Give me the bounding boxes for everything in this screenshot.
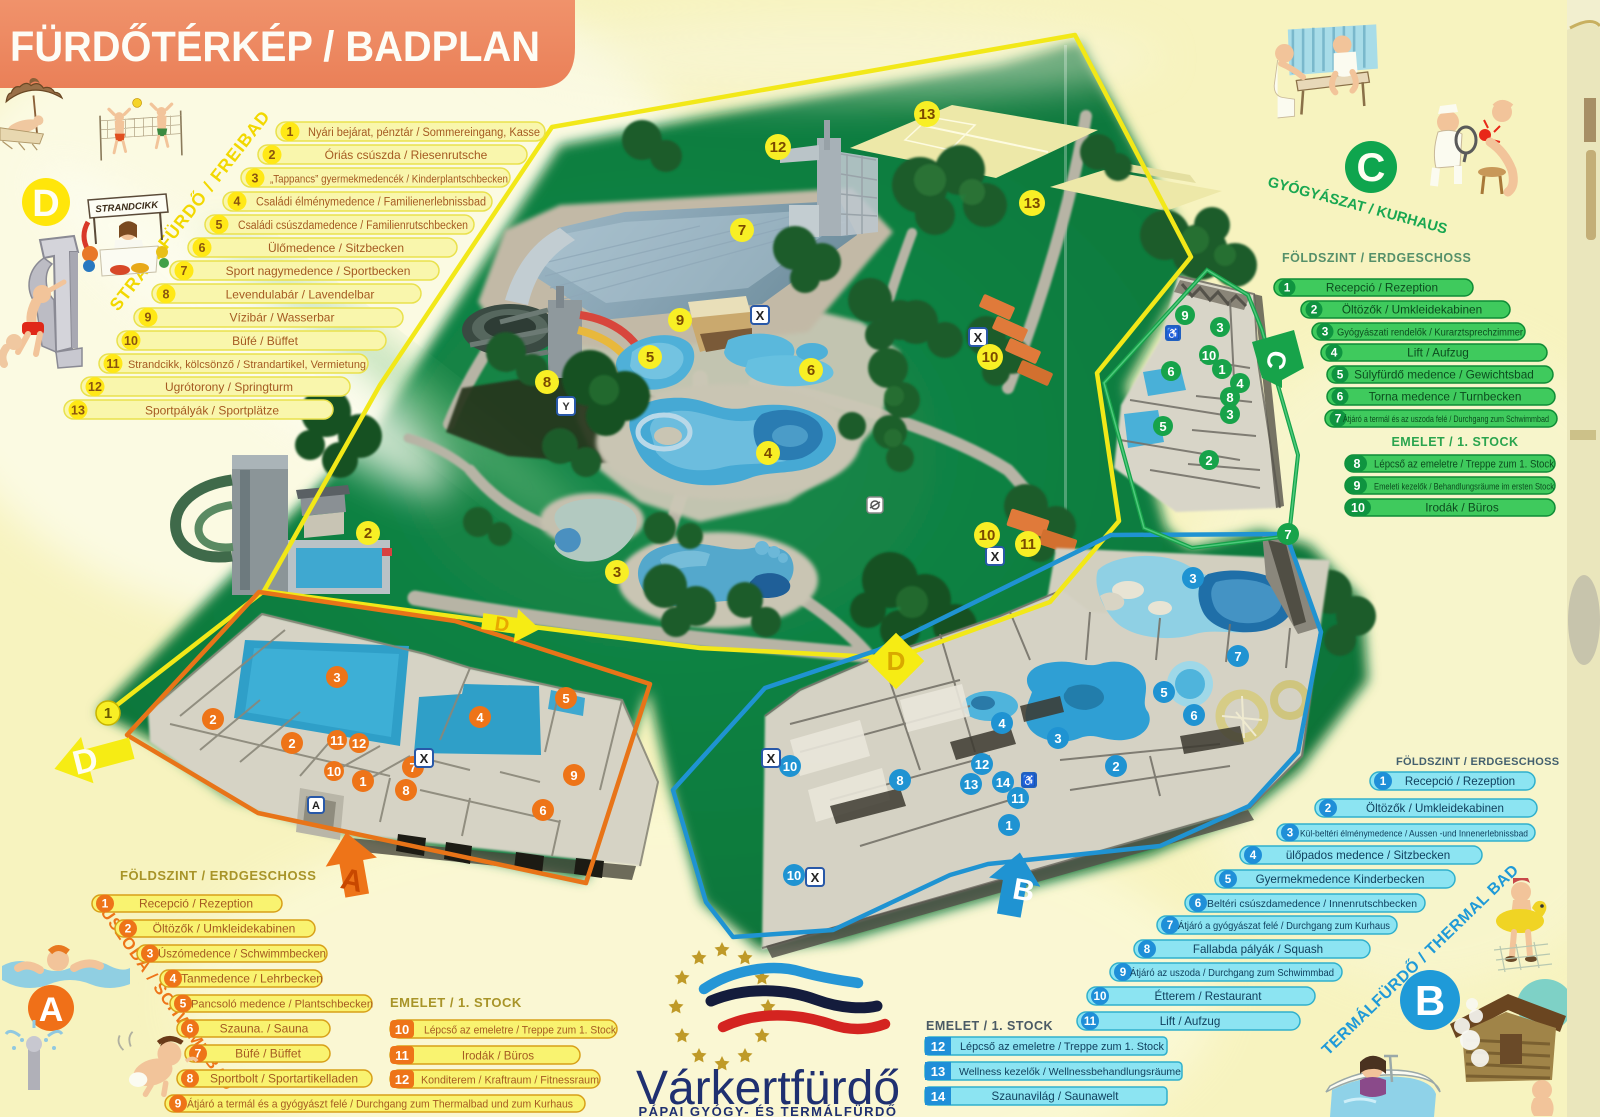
svg-text:14: 14	[931, 1089, 946, 1104]
svg-text:11: 11	[1011, 791, 1025, 806]
svg-text:3: 3	[147, 947, 154, 961]
svg-text:10: 10	[1351, 501, 1365, 515]
svg-text:D: D	[887, 646, 906, 676]
svg-text:5: 5	[562, 691, 569, 706]
svg-text:Ülőmedence / Sitzbecken: Ülőmedence / Sitzbecken	[268, 241, 404, 255]
svg-text:1: 1	[1005, 818, 1012, 833]
svg-text:8: 8	[1144, 943, 1151, 956]
svg-text:10: 10	[327, 764, 341, 779]
svg-text:13: 13	[964, 777, 978, 792]
svg-text:3: 3	[1054, 731, 1061, 746]
svg-text:Öltözők / Umkleidekabinen: Öltözők / Umkleidekabinen	[1366, 802, 1504, 815]
svg-text:11: 11	[330, 733, 344, 748]
svg-text:6: 6	[807, 362, 815, 379]
svg-text:9: 9	[1354, 479, 1361, 493]
svg-text:10: 10	[124, 334, 138, 348]
svg-text:4: 4	[1250, 849, 1257, 862]
svg-text:5: 5	[1159, 419, 1166, 434]
svg-text:Lépcső az emeletre / Treppe zu: Lépcső az emeletre / Treppe zum 1. Stock	[424, 1025, 616, 1037]
svg-text:10: 10	[395, 1022, 409, 1037]
svg-text:Nyári bejárat, pénztár / Somme: Nyári bejárat, pénztár / Sommereingang, …	[308, 127, 540, 139]
svg-text:1: 1	[1380, 775, 1387, 788]
svg-text:3: 3	[1226, 407, 1233, 422]
svg-text:Wellness kezelők / Wellnessbeh: Wellness kezelők / Wellnessbehandlungsrä…	[959, 1066, 1181, 1078]
svg-text:4: 4	[476, 710, 484, 725]
svg-text:11: 11	[1020, 536, 1036, 553]
svg-text:7: 7	[1234, 649, 1241, 664]
svg-text:Recepció / Rezeption: Recepció / Rezeption	[1405, 775, 1515, 788]
svg-text:X: X	[811, 870, 820, 885]
svg-text:7: 7	[1335, 412, 1342, 426]
svg-text:Sportbolt / Sportartikelladen: Sportbolt / Sportartikelladen	[210, 1072, 358, 1086]
svg-text:Étterem / Restaurant: Étterem / Restaurant	[1155, 990, 1263, 1003]
svg-text:8: 8	[543, 374, 551, 391]
svg-text:X: X	[974, 330, 983, 345]
svg-text:3: 3	[613, 564, 621, 581]
svg-text:FÖLDSZINT / ERDGESCHOSS: FÖLDSZINT / ERDGESCHOSS	[120, 868, 316, 883]
svg-text:5: 5	[180, 997, 187, 1011]
svg-text:2: 2	[1311, 303, 1318, 317]
svg-text:3: 3	[333, 670, 340, 685]
svg-text:X: X	[756, 308, 765, 323]
svg-text:4: 4	[234, 195, 241, 209]
svg-text:Fallabda pályák / Squash: Fallabda pályák / Squash	[1193, 943, 1323, 956]
svg-text:1: 1	[104, 705, 112, 722]
svg-text:6: 6	[1337, 390, 1344, 404]
svg-text:C: C	[1357, 146, 1386, 190]
svg-text:2: 2	[288, 736, 295, 751]
svg-text:10: 10	[787, 868, 801, 883]
svg-text:PÁPAI GYÓGY- ÉS TERMÁLFÜRDŐ: PÁPAI GYÓGY- ÉS TERMÁLFÜRDŐ	[638, 1104, 897, 1117]
svg-text:1: 1	[102, 897, 109, 911]
svg-text:8: 8	[1226, 390, 1233, 405]
svg-text:Családi csúszdamedence / Famil: Családi csúszdamedence / Familienrutschb…	[238, 220, 468, 232]
svg-text:9: 9	[175, 1097, 182, 1111]
svg-text:Irodák / Büros: Irodák / Büros	[462, 1050, 534, 1063]
svg-text:♿: ♿	[1166, 327, 1180, 340]
svg-text:2: 2	[364, 525, 372, 542]
svg-text:5: 5	[1337, 368, 1344, 382]
svg-text:12: 12	[395, 1072, 409, 1087]
svg-text:Átjáró a gyógyászat felé / Dur: Átjáró a gyógyászat felé / Durchgang zum…	[1178, 919, 1390, 932]
svg-text:Torna medence / Turnbecken: Torna medence / Turnbecken	[1369, 390, 1522, 404]
svg-text:2: 2	[125, 922, 132, 936]
svg-text:Recepció / Rezeption: Recepció / Rezeption	[139, 897, 253, 911]
svg-text:1: 1	[359, 774, 366, 789]
svg-text:Átjáró a termál és az uszoda f: Átjáró a termál és az uszoda felé / Durc…	[1343, 414, 1549, 424]
svg-text:8: 8	[896, 773, 903, 788]
svg-text:EMELET / 1. STOCK: EMELET / 1. STOCK	[390, 995, 522, 1010]
svg-text:8: 8	[1354, 457, 1361, 471]
svg-text:Súlyfürdő medence / Gewichtsba: Súlyfürdő medence / Gewichtsbad	[1354, 368, 1534, 382]
svg-text:12: 12	[770, 139, 787, 156]
svg-text:3: 3	[1189, 571, 1196, 586]
svg-text:Gyógyászati rendelők / Kurarzt: Gyógyászati rendelők / Kurarztsprechzimm…	[1337, 328, 1524, 339]
svg-text:EMELET / 1. STOCK: EMELET / 1. STOCK	[1391, 435, 1518, 449]
svg-text:11: 11	[106, 357, 119, 371]
svg-text:Recepció / Rezeption: Recepció / Rezeption	[1326, 281, 1438, 295]
svg-text:13: 13	[919, 106, 936, 123]
svg-text:Sportpályák / Sportplätze: Sportpályák / Sportplätze	[145, 403, 279, 417]
svg-text:4: 4	[170, 972, 177, 986]
svg-text:Szaunavilág / Saunawelt: Szaunavilág / Saunawelt	[992, 1090, 1120, 1103]
svg-text:Átjáró a termál és a gyógyászt: Átjáró a termál és a gyógyászt felé / Du…	[187, 1098, 573, 1111]
svg-text:9: 9	[145, 311, 152, 325]
svg-text:Lift / Aufzug: Lift / Aufzug	[1407, 346, 1469, 360]
svg-text:Büfé / Büffet: Büfé / Büffet	[232, 334, 298, 348]
svg-text:14: 14	[996, 775, 1011, 790]
svg-text:Y: Y	[562, 401, 570, 413]
svg-text:7: 7	[1167, 919, 1173, 932]
svg-text:Kül-beltéri élménymedence / Au: Kül-beltéri élménymedence / Aussen -und …	[1300, 829, 1528, 839]
svg-text:X: X	[420, 751, 429, 766]
svg-text:Tanmedence / Lehrbecken: Tanmedence / Lehrbecken	[181, 973, 323, 986]
svg-text:FÖLDSZINT / ERDGESCHOSS: FÖLDSZINT / ERDGESCHOSS	[1282, 250, 1471, 265]
svg-text:B: B	[1415, 977, 1445, 1024]
svg-text:9: 9	[1120, 966, 1127, 979]
svg-text:D: D	[32, 183, 59, 225]
svg-text:1: 1	[287, 125, 294, 139]
svg-text:9: 9	[1181, 308, 1188, 323]
svg-text:„Tappancs” gyermekmedencék / K: „Tappancs” gyermekmedencék / Kinderplant…	[270, 173, 508, 185]
svg-text:Beltéri csúszdamedence / Innen: Beltéri csúszdamedence / Innenrutschbeck…	[1207, 898, 1417, 910]
svg-text:6: 6	[1167, 364, 1174, 379]
svg-text:12: 12	[352, 736, 366, 751]
svg-text:Lépcső az emeletre / Treppe zu: Lépcső az emeletre / Treppe zum 1. Stock	[1374, 459, 1555, 471]
svg-text:6: 6	[199, 241, 206, 255]
svg-text:Lépcső az emeletre / Treppe zu: Lépcső az emeletre / Treppe zum 1. Stock	[960, 1041, 1164, 1053]
svg-text:7: 7	[1284, 527, 1291, 542]
svg-text:6: 6	[187, 1022, 194, 1036]
svg-text:Öltözők / Umkleidekabinen: Öltözők / Umkleidekabinen	[153, 922, 296, 936]
svg-text:Konditerem / Kraftraum / Fitne: Konditerem / Kraftraum / Fitnessraum	[421, 1075, 599, 1087]
svg-text:1: 1	[1218, 362, 1225, 377]
svg-text:3: 3	[1216, 320, 1223, 335]
svg-text:8: 8	[187, 1072, 194, 1086]
svg-text:13: 13	[931, 1064, 945, 1079]
svg-text:Lift / Aufzug: Lift / Aufzug	[1160, 1015, 1221, 1028]
svg-text:11: 11	[1084, 1015, 1097, 1028]
svg-text:2: 2	[1325, 802, 1331, 815]
svg-text:Sport nagymedence / Sportbecke: Sport nagymedence / Sportbecken	[226, 264, 411, 278]
svg-text:13: 13	[71, 403, 85, 417]
svg-text:11: 11	[395, 1048, 409, 1063]
svg-text:10: 10	[979, 527, 996, 544]
svg-text:10: 10	[783, 759, 797, 774]
svg-text:♿: ♿	[1022, 774, 1036, 787]
svg-text:9: 9	[570, 768, 577, 783]
svg-text:5: 5	[646, 349, 654, 366]
svg-text:10: 10	[1202, 348, 1216, 363]
svg-text:Úszómedence / Schwimmbecken: Úszómedence / Schwimmbecken	[158, 948, 326, 961]
svg-text:12: 12	[88, 380, 102, 394]
svg-text:4: 4	[1236, 376, 1244, 391]
svg-text:3: 3	[1287, 827, 1294, 840]
svg-text:2: 2	[209, 712, 216, 727]
svg-text:Ugrótorony / Springturm: Ugrótorony / Springturm	[165, 380, 293, 394]
svg-text:D: D	[493, 613, 510, 637]
svg-text:6: 6	[1190, 708, 1197, 723]
svg-text:10: 10	[982, 349, 999, 366]
svg-text:2: 2	[1205, 453, 1212, 468]
svg-text:Büfé / Büffet: Büfé / Büffet	[235, 1047, 301, 1061]
svg-text:8: 8	[163, 287, 170, 301]
svg-text:5: 5	[216, 218, 223, 232]
svg-text:13: 13	[1024, 195, 1041, 212]
svg-text:3: 3	[1322, 325, 1329, 339]
svg-text:Levendulabár / Lavendelbar: Levendulabár / Lavendelbar	[226, 287, 375, 301]
svg-text:X: X	[991, 549, 1000, 564]
svg-text:3: 3	[252, 171, 259, 185]
svg-text:7: 7	[738, 222, 746, 239]
svg-text:A: A	[312, 800, 320, 812]
svg-text:FÖLDSZINT / ERDGESCHOSS: FÖLDSZINT / ERDGESCHOSS	[1396, 755, 1559, 768]
svg-text:10: 10	[1094, 990, 1107, 1003]
svg-text:Strandcikk, kölcsönző / Strand: Strandcikk, kölcsönző / Strandartikel, V…	[128, 359, 366, 371]
svg-text:8: 8	[402, 783, 409, 798]
svg-text:Vízibár / Wasserbar: Vízibár / Wasserbar	[230, 311, 335, 325]
svg-text:FÜRDŐTÉRKÉP / BADPLAN: FÜRDŐTÉRKÉP / BADPLAN	[10, 23, 540, 71]
svg-text:ülőpados medence / Sitzbecken: ülőpados medence / Sitzbecken	[1286, 849, 1450, 862]
svg-text:Pancsoló medence / Plantschbec: Pancsoló medence / Plantschbecken	[191, 999, 373, 1011]
svg-text:12: 12	[931, 1039, 945, 1054]
svg-text:9: 9	[676, 312, 684, 329]
svg-text:2: 2	[1112, 759, 1119, 774]
svg-text:Átjáró az uszoda / Durchgang: Átjáró az uszoda / Durchgang zum Schwimm…	[1130, 966, 1334, 979]
svg-text:Óriás csúszda / Riesenrutsche: Óriás csúszda / Riesenrutsche	[325, 147, 488, 162]
svg-text:EMELET / 1. STOCK: EMELET / 1. STOCK	[926, 1019, 1053, 1033]
svg-text:6: 6	[1195, 897, 1202, 910]
svg-text:5: 5	[1225, 873, 1232, 886]
svg-text:Szauna. / Sauna: Szauna. / Sauna	[220, 1022, 309, 1036]
svg-text:Családi élménymedence / Famili: Családi élménymedence / Familienerlebnis…	[256, 197, 486, 209]
svg-text:2: 2	[269, 148, 276, 162]
svg-text:4: 4	[764, 445, 773, 462]
svg-text:5: 5	[1160, 685, 1167, 700]
svg-text:Irodák / Büros: Irodák / Büros	[1425, 501, 1499, 515]
svg-text:X: X	[767, 751, 776, 766]
svg-text:1: 1	[1284, 281, 1291, 295]
svg-text:6: 6	[539, 803, 546, 818]
svg-text:4: 4	[1331, 346, 1338, 360]
svg-text:12: 12	[975, 757, 989, 772]
svg-text:A: A	[39, 991, 64, 1029]
svg-text:Gyermekmedence Kinderbecken: Gyermekmedence Kinderbecken	[1256, 873, 1425, 886]
svg-text:4: 4	[998, 716, 1006, 731]
svg-text:7: 7	[181, 264, 188, 278]
svg-text:Öltözők / Umkleidekabinen: Öltözők / Umkleidekabinen	[1342, 303, 1482, 317]
svg-text:Emeleti kezelők / Behandlungsr: Emeleti kezelők / Behandlungsräume im er…	[1374, 482, 1554, 492]
